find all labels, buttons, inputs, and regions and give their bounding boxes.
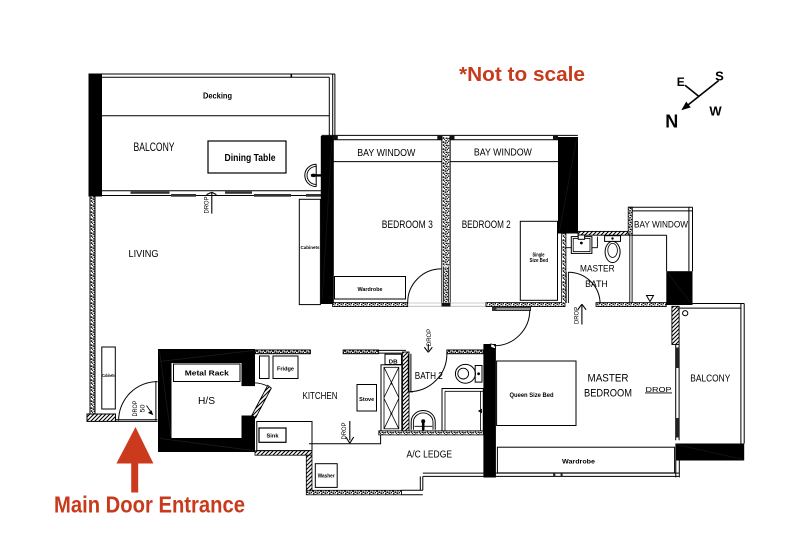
svg-text:*Not to scale: *Not to scale [459, 63, 585, 86]
svg-text:A/C LEDGE: A/C LEDGE [407, 448, 453, 460]
svg-text:DROP: DROP [646, 387, 672, 394]
svg-text:W: W [709, 104, 722, 119]
svg-text:Sink: Sink [267, 433, 279, 439]
svg-text:BAY WINDOW: BAY WINDOW [634, 220, 688, 231]
svg-text:E: E [677, 75, 685, 89]
svg-text:Decking: Decking [203, 91, 232, 100]
svg-text:MASTER: MASTER [580, 264, 615, 275]
svg-text:DROP: DROP [426, 329, 433, 346]
svg-text:Queen Size Bed: Queen Size Bed [510, 392, 554, 399]
svg-text:Cabinets: Cabinets [102, 373, 115, 379]
svg-text:BEDROOM 3: BEDROOM 3 [382, 219, 433, 231]
svg-text:Stove: Stove [359, 397, 374, 403]
svg-text:50: 50 [140, 404, 146, 413]
svg-text:BALCONY: BALCONY [134, 142, 175, 154]
svg-text:S: S [715, 69, 724, 84]
svg-text:Main Door Entrance: Main Door Entrance [54, 492, 245, 518]
svg-text:BATH: BATH [585, 279, 608, 290]
svg-text:Metal Rack: Metal Rack [185, 370, 229, 377]
svg-text:BAY WINDOW: BAY WINDOW [474, 148, 532, 159]
svg-text:Washer: Washer [318, 474, 335, 480]
svg-text:Dining Table: Dining Table [225, 152, 276, 164]
svg-text:KITCHEN: KITCHEN [303, 390, 338, 402]
svg-text:DROP: DROP [341, 423, 348, 440]
svg-text:H/S: H/S [198, 395, 215, 407]
svg-text:DROP: DROP [574, 307, 581, 324]
svg-text:DB: DB [389, 359, 398, 365]
svg-text:Size Bed: Size Bed [530, 258, 549, 264]
svg-text:BAY WINDOW: BAY WINDOW [357, 148, 415, 159]
svg-text:Fridge: Fridge [277, 366, 294, 372]
svg-text:MASTER: MASTER [588, 372, 629, 384]
svg-text:Cabinets: Cabinets [301, 245, 320, 251]
svg-text:BEDROOM: BEDROOM [584, 387, 632, 399]
svg-text:DROP: DROP [204, 197, 211, 214]
svg-text:BATH 2: BATH 2 [415, 371, 443, 382]
svg-text:BALCONY: BALCONY [690, 373, 730, 385]
svg-text:BEDROOM 2: BEDROOM 2 [462, 219, 511, 231]
svg-text:LIVING: LIVING [129, 248, 159, 260]
svg-text:DROP: DROP [133, 401, 139, 417]
svg-text:Wardrobe: Wardrobe [562, 458, 595, 465]
svg-text:N: N [665, 112, 678, 132]
svg-text:Wardrobe: Wardrobe [358, 287, 383, 293]
